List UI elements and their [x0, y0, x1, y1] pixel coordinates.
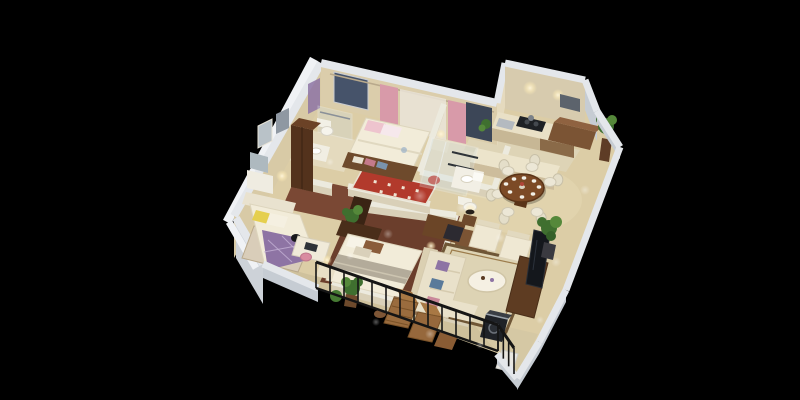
place-setting [532, 179, 537, 182]
floor-plan-render: 3D isometric cutaway floor plan of a thr… [0, 0, 800, 400]
tall-plant [546, 231, 556, 241]
place-setting [508, 190, 513, 193]
table-decor [490, 278, 494, 282]
wash-basin [461, 176, 473, 183]
floor-plan-stage: 3D isometric cutaway floor plan of a thr… [0, 0, 800, 400]
rug-pattern [393, 193, 397, 197]
place-setting [504, 182, 509, 185]
rug-pattern [407, 196, 411, 200]
desk-chair [301, 253, 312, 261]
floor-highlight [495, 233, 505, 243]
rug-pattern [401, 186, 405, 190]
pink-curtain-right [448, 100, 466, 144]
coffee-table [468, 270, 506, 292]
place-setting [520, 195, 525, 198]
place-setting [512, 177, 517, 180]
floor-highlight [372, 318, 380, 326]
toilet [321, 127, 333, 136]
centerpiece-flowers [520, 182, 524, 186]
floor-highlight [346, 252, 354, 260]
dining-chair [544, 178, 556, 187]
place-setting [537, 185, 542, 188]
rug-pattern [373, 180, 377, 184]
dining-chair [502, 208, 514, 217]
place-setting [522, 176, 527, 179]
nightstand-lamp-glow [436, 129, 446, 139]
dining-chair [531, 208, 543, 217]
floor-highlight [413, 189, 427, 203]
floor-highlight [383, 229, 393, 239]
burner [525, 120, 530, 125]
table-decor [481, 276, 485, 280]
pot [528, 115, 534, 121]
duvet-motif [401, 147, 407, 153]
floor-highlight [551, 257, 561, 267]
floor-highlight [456, 202, 468, 214]
potted-plant [341, 277, 351, 287]
potted-plant [353, 205, 363, 215]
rug-pattern [387, 183, 391, 187]
potted-plant [342, 208, 350, 216]
dresser-lamp-glow [276, 170, 288, 182]
kitchen-ceiling-light [523, 81, 537, 95]
place-setting [531, 192, 536, 195]
floor-highlight [326, 158, 334, 166]
dining-chair [502, 167, 514, 176]
floor-highlight [425, 329, 435, 339]
floor-highlight [476, 341, 484, 349]
dining-chair [526, 163, 538, 172]
burner [534, 122, 539, 127]
rug-pattern [379, 190, 383, 194]
floor-highlight [536, 316, 544, 324]
tall-plant [550, 216, 562, 228]
floor-highlight [580, 185, 590, 195]
counter-plant [479, 125, 486, 132]
tall-plant [537, 217, 547, 227]
